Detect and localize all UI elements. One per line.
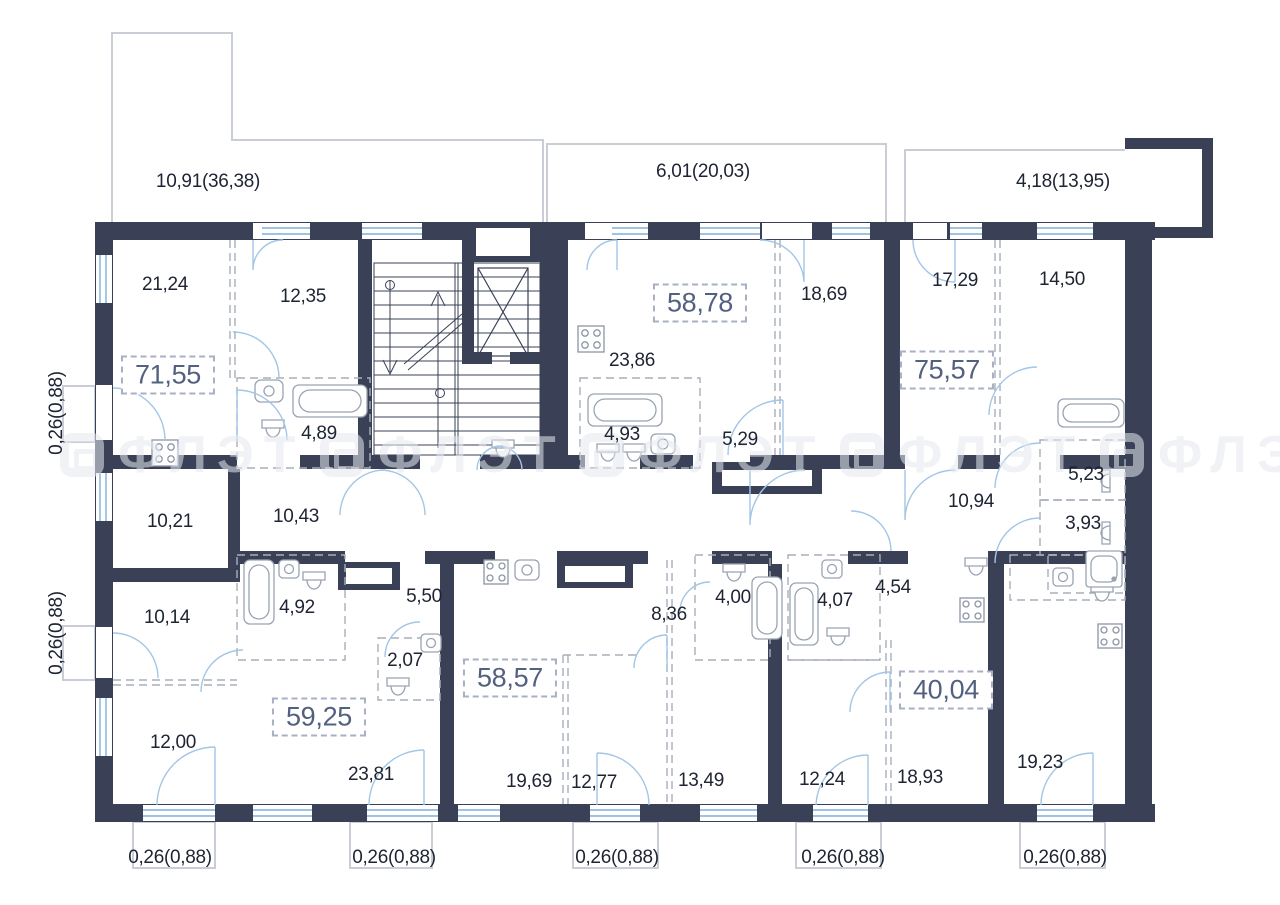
room-area-label: 18,69: [801, 284, 847, 306]
apartment-total-label-4: 59,25: [272, 698, 366, 737]
dim-label-left-upper: 0,26(0,88): [46, 371, 68, 455]
room-area-label: 4,07: [817, 590, 853, 612]
room-area-label: 12,24: [799, 769, 845, 791]
shower-icon: [1086, 551, 1122, 587]
room-area-label: 23,86: [609, 350, 655, 372]
room-area-label: 4,93: [604, 424, 640, 446]
room-area-label: 10,14: [144, 607, 190, 629]
floor-plan-drawing: [0, 0, 1280, 905]
elevator: [478, 268, 528, 356]
dim-label-left-lower: 0,26(0,88): [46, 591, 68, 675]
floor-plan: ФЛЭТ ФЛЭТ ФЛЭТ ФЛЭТ ФЛЭТ 10,91(36,38) 6,…: [0, 0, 1280, 905]
apartment-total-label-2: 58,78: [653, 284, 747, 323]
room-area-label: 12,35: [280, 286, 326, 308]
room-area-label: 3,93: [1065, 513, 1101, 535]
door-arcs: [113, 240, 1093, 805]
dim-label-bottom-1: 0,26(0,88): [128, 847, 212, 869]
room-area-label: 2,07: [387, 650, 423, 672]
shaft-openings: [346, 228, 812, 584]
room-area-label: 10,21: [147, 511, 193, 533]
room-area-label: 10,43: [273, 506, 319, 528]
dim-label-top-middle: 6,01(20,03): [656, 161, 750, 183]
dim-label-bottom-2: 0,26(0,88): [352, 847, 436, 869]
room-area-label: 4,92: [279, 597, 315, 619]
room-area-label: 12,77: [571, 772, 617, 794]
room-area-label: 21,24: [142, 274, 188, 296]
room-area-label: 19,69: [506, 771, 552, 793]
room-area-label: 17,29: [932, 270, 978, 292]
room-area-label: 8,36: [651, 604, 687, 626]
apartment-total-label-1: 71,55: [121, 356, 215, 395]
room-area-label: 5,29: [722, 429, 758, 451]
windows: [96, 223, 1093, 821]
room-area-label: 10,94: [948, 491, 994, 513]
room-area-label: 4,00: [715, 587, 751, 609]
dim-label-bottom-4: 0,26(0,88): [801, 847, 885, 869]
apartment-total-label-5: 58,57: [463, 659, 557, 698]
dim-label-bottom-3: 0,26(0,88): [575, 847, 659, 869]
dashed-partitions: [113, 240, 1125, 804]
room-area-label: 5,23: [1068, 464, 1104, 486]
room-area-label: 4,89: [301, 423, 337, 445]
dim-label-top-left: 10,91(36,38): [156, 171, 260, 193]
room-area-label: 12,00: [150, 732, 196, 754]
walls: [95, 138, 1213, 822]
balcony-outlines: [63, 33, 1125, 868]
apartment-total-label-6: 40,04: [899, 671, 993, 710]
dim-label-top-right: 4,18(13,95): [1016, 171, 1110, 193]
room-area-label: 4,54: [875, 577, 911, 599]
room-area-label: 19,23: [1017, 752, 1063, 774]
apartment-total-label-3: 75,57: [900, 351, 994, 390]
room-area-label: 23,81: [348, 764, 394, 786]
room-area-label: 5,50: [406, 586, 442, 608]
room-area-label: 14,50: [1039, 269, 1085, 291]
room-area-label: 13,49: [678, 770, 724, 792]
room-area-label: 18,93: [897, 767, 943, 789]
dim-label-bottom-5: 0,26(0,88): [1023, 847, 1107, 869]
